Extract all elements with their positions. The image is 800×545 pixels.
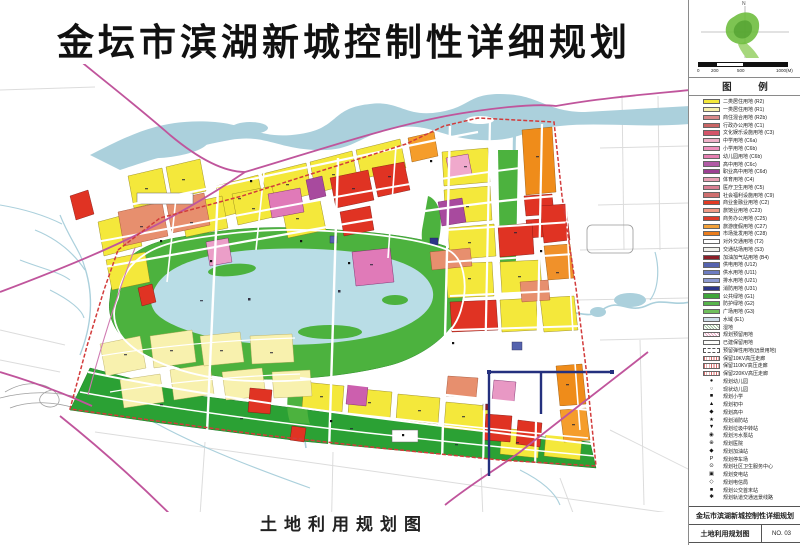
legend-item: 供水用地 (U11) xyxy=(703,269,800,277)
legend-item-label: 高中用地 (C6c) xyxy=(723,161,757,168)
legend-item-label: 规划污水泵站 xyxy=(723,432,753,439)
legend-item-label: 二类居住用地 (R2) xyxy=(723,98,764,105)
legend-item-label: 规划小学 xyxy=(723,393,743,400)
legend-item: 一类居住用地 (R1) xyxy=(703,106,800,114)
legend-item: 医疗卫生用地 (C5) xyxy=(703,183,800,191)
legend-item-label: 中学用地 (C6a) xyxy=(723,137,757,144)
legend-item: 广场用地 (G3) xyxy=(703,308,800,316)
legend-item-label: 保留220KV高压走廊 xyxy=(723,370,768,377)
legend-swatch: ▣ xyxy=(703,472,720,477)
legend-item: 对外交通用地 (T2) xyxy=(703,238,800,246)
legend-item-label: 规划消防站 xyxy=(723,417,748,424)
legend-item: 已建保留用地 xyxy=(703,339,800,347)
legend-item-label: 保留10KV高压走廊 xyxy=(723,355,765,362)
legend-item-label: 已建保留用地 xyxy=(723,339,753,346)
legend-item-label: 广场用地 (G3) xyxy=(723,308,754,315)
legend-swatch xyxy=(703,138,720,143)
legend-item-label: 保留110KV高压走廊 xyxy=(723,362,768,369)
legend-item-label: 水域 (E1) xyxy=(723,316,744,323)
legend-swatch xyxy=(703,309,720,314)
legend-item-label: 体育用地 (C4) xyxy=(723,176,754,183)
legend-item: ○ 现状幼儿园 xyxy=(703,385,800,393)
legend-item-label: 旅馆业用地 (C23) xyxy=(723,207,762,214)
legend-swatch xyxy=(703,130,720,135)
legend-item: ▣ 规划变电站 xyxy=(703,471,800,479)
title-block: 金坛市滨湖新城控制性详细规划 土地利用规划图 NO. 03 xyxy=(689,506,800,543)
plan-sheet: 金坛市滨湖新城控制性详细规划 xyxy=(0,0,800,545)
legend-swatch xyxy=(703,286,720,291)
legend-swatch xyxy=(703,247,720,252)
legend-item-label: 规划社区卫生服务中心 xyxy=(723,463,773,470)
scale-tick: 1000(M) xyxy=(776,68,793,73)
legend-item: 高中用地 (C6c) xyxy=(703,160,800,168)
scale-tick: 500 xyxy=(737,68,745,73)
north-label: N xyxy=(742,1,746,7)
legend-swatch xyxy=(703,317,720,322)
legend-item: ◉ 规划污水泵站 xyxy=(703,432,800,440)
legend-item-label: 规划公交首末站 xyxy=(723,487,758,494)
legend-item-label: 幼儿园用地 (C6b) xyxy=(723,153,762,160)
legend-item: ◇ 规划电信局 xyxy=(703,479,800,487)
legend-item-label: 市场批发用地 (C28) xyxy=(723,230,767,237)
legend-item-label: 供电用地 (U12) xyxy=(723,261,757,268)
legend-item-label: 规划变电站 xyxy=(723,471,748,478)
legend-swatch: ● xyxy=(703,379,720,384)
legend-swatch xyxy=(703,123,720,128)
legend-item: ▲ 规划初中 xyxy=(703,401,800,409)
legend-item: 小学用地 (C6b) xyxy=(703,145,800,153)
legend-item-label: 规划医院 xyxy=(723,440,743,447)
legend-item-label: 交通站场用地 (S3) xyxy=(723,246,764,253)
legend-swatch xyxy=(703,146,720,151)
legend-item: 规划预留用地 xyxy=(703,331,800,339)
legend-item: ◆ 规划高中 xyxy=(703,409,800,417)
legend-item: ✱ 规划轨道交通远景线路 xyxy=(703,494,800,502)
legend-item: 保留10KV高压走廊 xyxy=(703,354,800,362)
map-column: 金坛市滨湖新城控制性详细规划 xyxy=(0,0,688,545)
legend-item: ⊙ 规划社区卫生服务中心 xyxy=(703,463,800,471)
legend-item-label: 社会福利设施用地 (C9) xyxy=(723,192,774,199)
legend-item-label: 规划停车场 xyxy=(723,456,748,463)
legend-item-label: 规划预留用地 xyxy=(723,331,753,338)
legend-swatch xyxy=(703,262,720,267)
legend-swatch xyxy=(703,231,720,236)
legend-item-label: 文化娱乐设施用地 (C3) xyxy=(723,129,774,136)
legend-item: ■ 规划小学 xyxy=(703,393,800,401)
legend-item: 消防用地 (U31) xyxy=(703,284,800,292)
legend-swatch xyxy=(703,192,720,197)
legend-item-label: 商业金融业用地 (C2) xyxy=(723,199,769,206)
legend-swatch xyxy=(703,200,720,205)
legend-swatch xyxy=(703,332,720,337)
legend-item: ◆ 规划加油站 xyxy=(703,447,800,455)
map-caption: 土地利用规划图 xyxy=(0,510,688,535)
legend-item-label: 规划轨道交通远景线路 xyxy=(723,494,773,501)
legend-swatch xyxy=(703,115,720,120)
legend-swatch xyxy=(703,278,720,283)
scale-bar-labels: 0 200 500 1000(M) xyxy=(698,67,792,74)
legend-item: ⊕ 规划医院 xyxy=(703,440,800,448)
legend-item-label: 规划加油站 xyxy=(723,448,748,455)
legend-swatch: ⊙ xyxy=(703,464,720,469)
legend-item: 商业金融业用地 (C2) xyxy=(703,199,800,207)
legend-swatch xyxy=(703,161,720,166)
legend-item-label: 职业高中用地 (C6d) xyxy=(723,168,767,175)
legend-item-label: 消防用地 (U31) xyxy=(723,285,757,292)
legend-item-label: 行政办公用地 (C1) xyxy=(723,122,764,129)
legend-swatch xyxy=(703,270,720,275)
legend-swatch xyxy=(703,208,720,213)
legend-item: 体育用地 (C4) xyxy=(703,176,800,184)
legend-item-label: 旅游度假用地 (C27) xyxy=(723,223,767,230)
legend-item: ★ 规划消防站 xyxy=(703,416,800,424)
legend-item: 行政办公用地 (C1) xyxy=(703,121,800,129)
legend-item: 公共绿地 (G1) xyxy=(703,292,800,300)
legend-item: 预留弹性用地(远景用地) xyxy=(703,347,800,355)
legend-item-label: 规划初中 xyxy=(723,401,743,408)
legend-swatch xyxy=(703,177,720,182)
legend-item: P 规划停车场 xyxy=(703,455,800,463)
legend-item-label: 小学用地 (C6b) xyxy=(723,145,757,152)
legend-item-label: 商住混合用地 (R2b) xyxy=(723,114,767,121)
legend-swatch xyxy=(703,255,720,260)
legend-list: 二类居住用地 (R2) 一类居住用地 (R1) 商住混合用地 (R2b) 行政办… xyxy=(703,98,800,502)
legend-item-label: 一类居住用地 (R1) xyxy=(723,106,764,113)
legend-panel: N 0 200 500 1000(M) 图 例 二类居住用地 (R2) 一类居住… xyxy=(688,0,800,545)
legend-swatch xyxy=(703,293,720,298)
legend-item-label: 规划电信局 xyxy=(723,479,748,486)
legend-item-label: 规划垃圾中转站 xyxy=(723,425,758,432)
legend-item-label: 公共绿地 (G1) xyxy=(723,293,754,300)
legend-item-label: 规划高中 xyxy=(723,409,743,416)
landuse-map xyxy=(0,64,688,512)
legend-swatch xyxy=(703,224,720,229)
legend-item: 旅游度假用地 (C27) xyxy=(703,222,800,230)
legend-item: 社会福利设施用地 (C9) xyxy=(703,191,800,199)
legend-item: 保留220KV高压走廊 xyxy=(703,370,800,378)
legend-swatch: ○ xyxy=(703,387,720,392)
legend-item-label: 湿地 xyxy=(723,324,733,331)
legend-item: 二类居住用地 (R2) xyxy=(703,98,800,106)
legend-swatch xyxy=(703,169,720,174)
legend-swatch xyxy=(703,363,720,368)
legend-swatch: ■ xyxy=(703,488,720,493)
legend-swatch xyxy=(703,99,720,104)
title-block-drawing-name: 土地利用规划图 xyxy=(689,525,762,542)
legend-swatch: ◉ xyxy=(703,433,720,438)
legend-item: 交通站场用地 (S3) xyxy=(703,246,800,254)
locator-region-shape xyxy=(738,42,764,58)
legend-item: 供电用地 (U12) xyxy=(703,261,800,269)
scale-tick: 0 xyxy=(697,68,700,73)
legend-item: 商住混合用地 (R2b) xyxy=(703,114,800,122)
legend-swatch: ⊕ xyxy=(703,441,720,446)
legend-swatch xyxy=(703,216,720,221)
legend-swatch xyxy=(703,356,720,361)
legend-swatch xyxy=(703,340,720,345)
legend-item-label: 对外交通用地 (T2) xyxy=(723,238,764,245)
legend-swatch: ▲ xyxy=(703,402,720,407)
legend-item: 水域 (E1) xyxy=(703,315,800,323)
legend-item-label: 商务办公用地 (C25) xyxy=(723,215,767,222)
scale-bar: 0 200 500 1000(M) xyxy=(698,62,792,75)
legend-swatch xyxy=(703,185,720,190)
title-block-project: 金坛市滨湖新城控制性详细规划 xyxy=(689,507,800,525)
legend-item: 商务办公用地 (C25) xyxy=(703,214,800,222)
legend-item: ● 规划幼儿园 xyxy=(703,378,800,386)
legend-item: 市场批发用地 (C28) xyxy=(703,230,800,238)
title-block-sheet-number: NO. 03 xyxy=(762,525,800,542)
locator-map xyxy=(689,0,800,58)
legend-item-label: 现状幼儿园 xyxy=(723,386,748,393)
legend-item: 职业高中用地 (C6d) xyxy=(703,168,800,176)
legend-item: 幼儿园用地 (C6b) xyxy=(703,152,800,160)
legend-swatch xyxy=(703,239,720,244)
legend-item-label: 预留弹性用地(远景用地) xyxy=(723,347,776,354)
legend-item: 旅馆业用地 (C23) xyxy=(703,207,800,215)
legend-swatch xyxy=(703,301,720,306)
legend-swatch: ✱ xyxy=(703,495,720,500)
legend-item-label: 排水用地 (U21) xyxy=(723,277,757,284)
legend-header: 图 例 xyxy=(689,79,800,93)
legend-swatch: ◇ xyxy=(703,480,720,485)
legend-swatch xyxy=(703,324,720,329)
legend-swatch: ★ xyxy=(703,418,720,423)
legend-item-label: 供水用地 (U11) xyxy=(723,269,757,276)
legend-swatch: P xyxy=(703,457,720,462)
legend-swatch: ◆ xyxy=(703,410,720,415)
legend-item: 湿地 xyxy=(703,323,800,331)
legend-swatch: ◆ xyxy=(703,449,720,454)
page-title: 金坛市滨湖新城控制性详细规划 xyxy=(0,12,688,66)
legend-item: 保留110KV高压走廊 xyxy=(703,362,800,370)
legend-swatch xyxy=(703,371,720,376)
legend-swatch xyxy=(703,107,720,112)
legend-item: 防护绿地 (G2) xyxy=(703,300,800,308)
legend-swatch: ▼ xyxy=(703,425,720,430)
legend-item: 加油加气站用地 (B4) xyxy=(703,253,800,261)
legend-item: 文化娱乐设施用地 (C3) xyxy=(703,129,800,137)
legend-item-label: 防护绿地 (G2) xyxy=(723,300,754,307)
legend-swatch: ■ xyxy=(703,394,720,399)
legend-swatch xyxy=(703,154,720,159)
legend-item-label: 规划幼儿园 xyxy=(723,378,748,385)
legend-item: 中学用地 (C6a) xyxy=(703,137,800,145)
legend-swatch xyxy=(703,348,720,353)
legend-item: ■ 规划公交首末站 xyxy=(703,486,800,494)
legend-item-label: 医疗卫生用地 (C5) xyxy=(723,184,764,191)
legend-item: ▼ 规划垃圾中转站 xyxy=(703,424,800,432)
legend-item: 排水用地 (U21) xyxy=(703,277,800,285)
legend-item-label: 加油加气站用地 (B4) xyxy=(723,254,769,261)
scale-tick: 200 xyxy=(711,68,719,73)
